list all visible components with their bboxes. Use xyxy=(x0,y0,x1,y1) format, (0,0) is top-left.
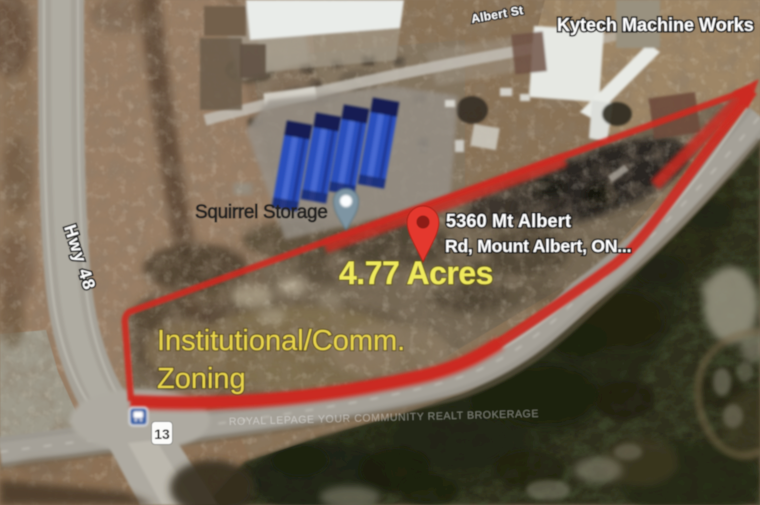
svg-text:Rd, Mount Albert, ON...: Rd, Mount Albert, ON... xyxy=(445,236,631,256)
svg-text:5360 Mt Albert: 5360 Mt Albert xyxy=(446,211,571,231)
svg-text:13: 13 xyxy=(154,426,170,442)
svg-text:Zoning: Zoning xyxy=(157,363,246,395)
svg-text:Squirrel Storage: Squirrel Storage xyxy=(195,202,328,223)
svg-text:4.77 Acres: 4.77 Acres xyxy=(339,255,493,291)
svg-text:Institutional/Comm.: Institutional/Comm. xyxy=(157,325,405,357)
svg-text:Kytech Machine Works: Kytech Machine Works xyxy=(557,15,754,35)
